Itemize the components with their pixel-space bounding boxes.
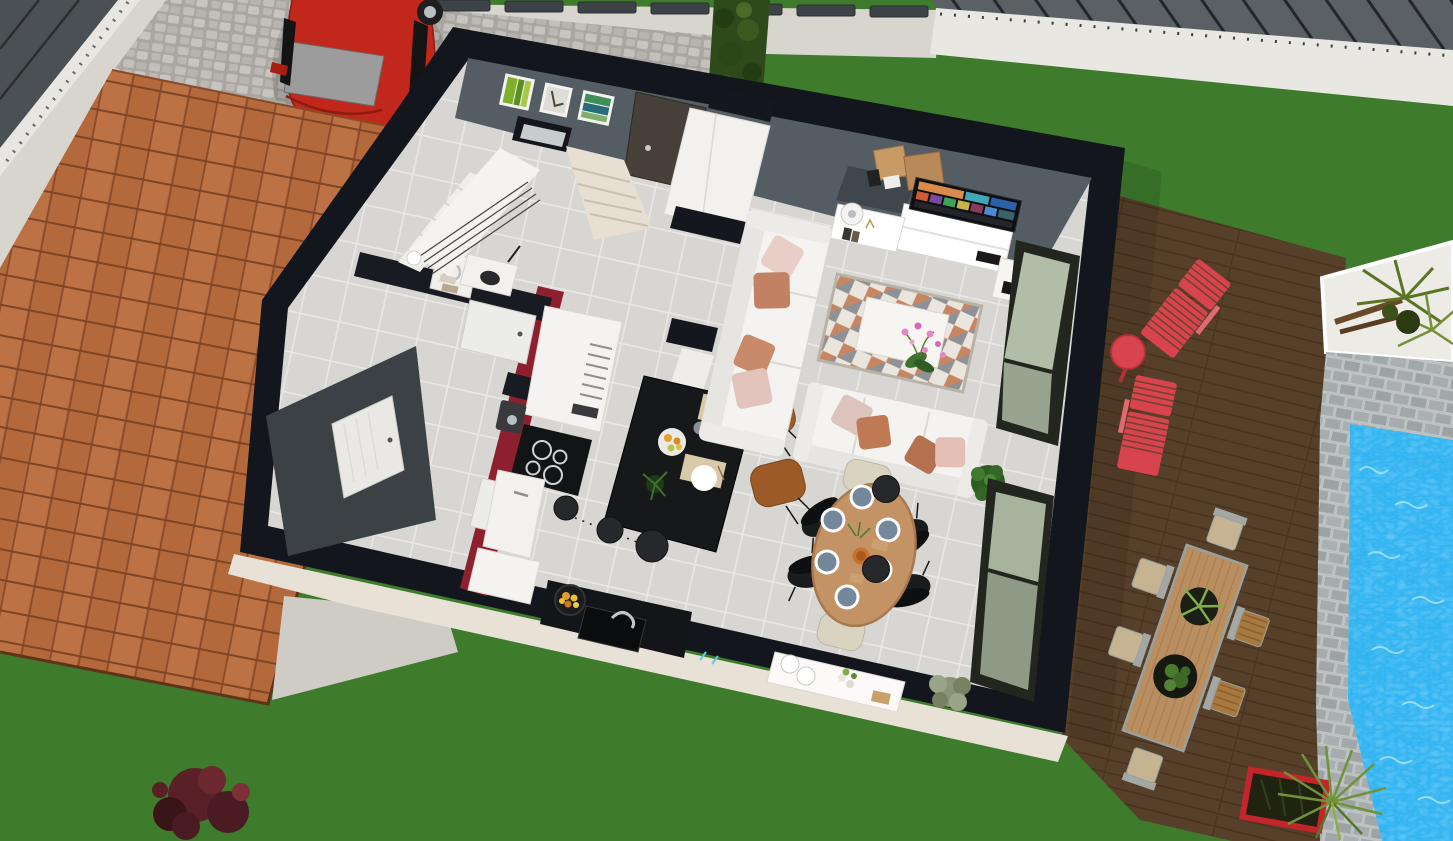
- door-handle: [388, 438, 393, 443]
- door-handle: [518, 332, 523, 337]
- throw-pillow: [753, 272, 790, 309]
- pan-with-food[interactable]: [555, 585, 585, 615]
- newel-post: [407, 251, 421, 265]
- 3d-viewport[interactable]: [0, 0, 1453, 841]
- throw-pillow: [935, 437, 965, 467]
- throw-pillow: [856, 414, 892, 450]
- fruit-plate: [658, 428, 686, 456]
- olive-plant[interactable]: [929, 675, 971, 711]
- throw-pillow: [731, 367, 773, 409]
- door-handle: [645, 145, 651, 151]
